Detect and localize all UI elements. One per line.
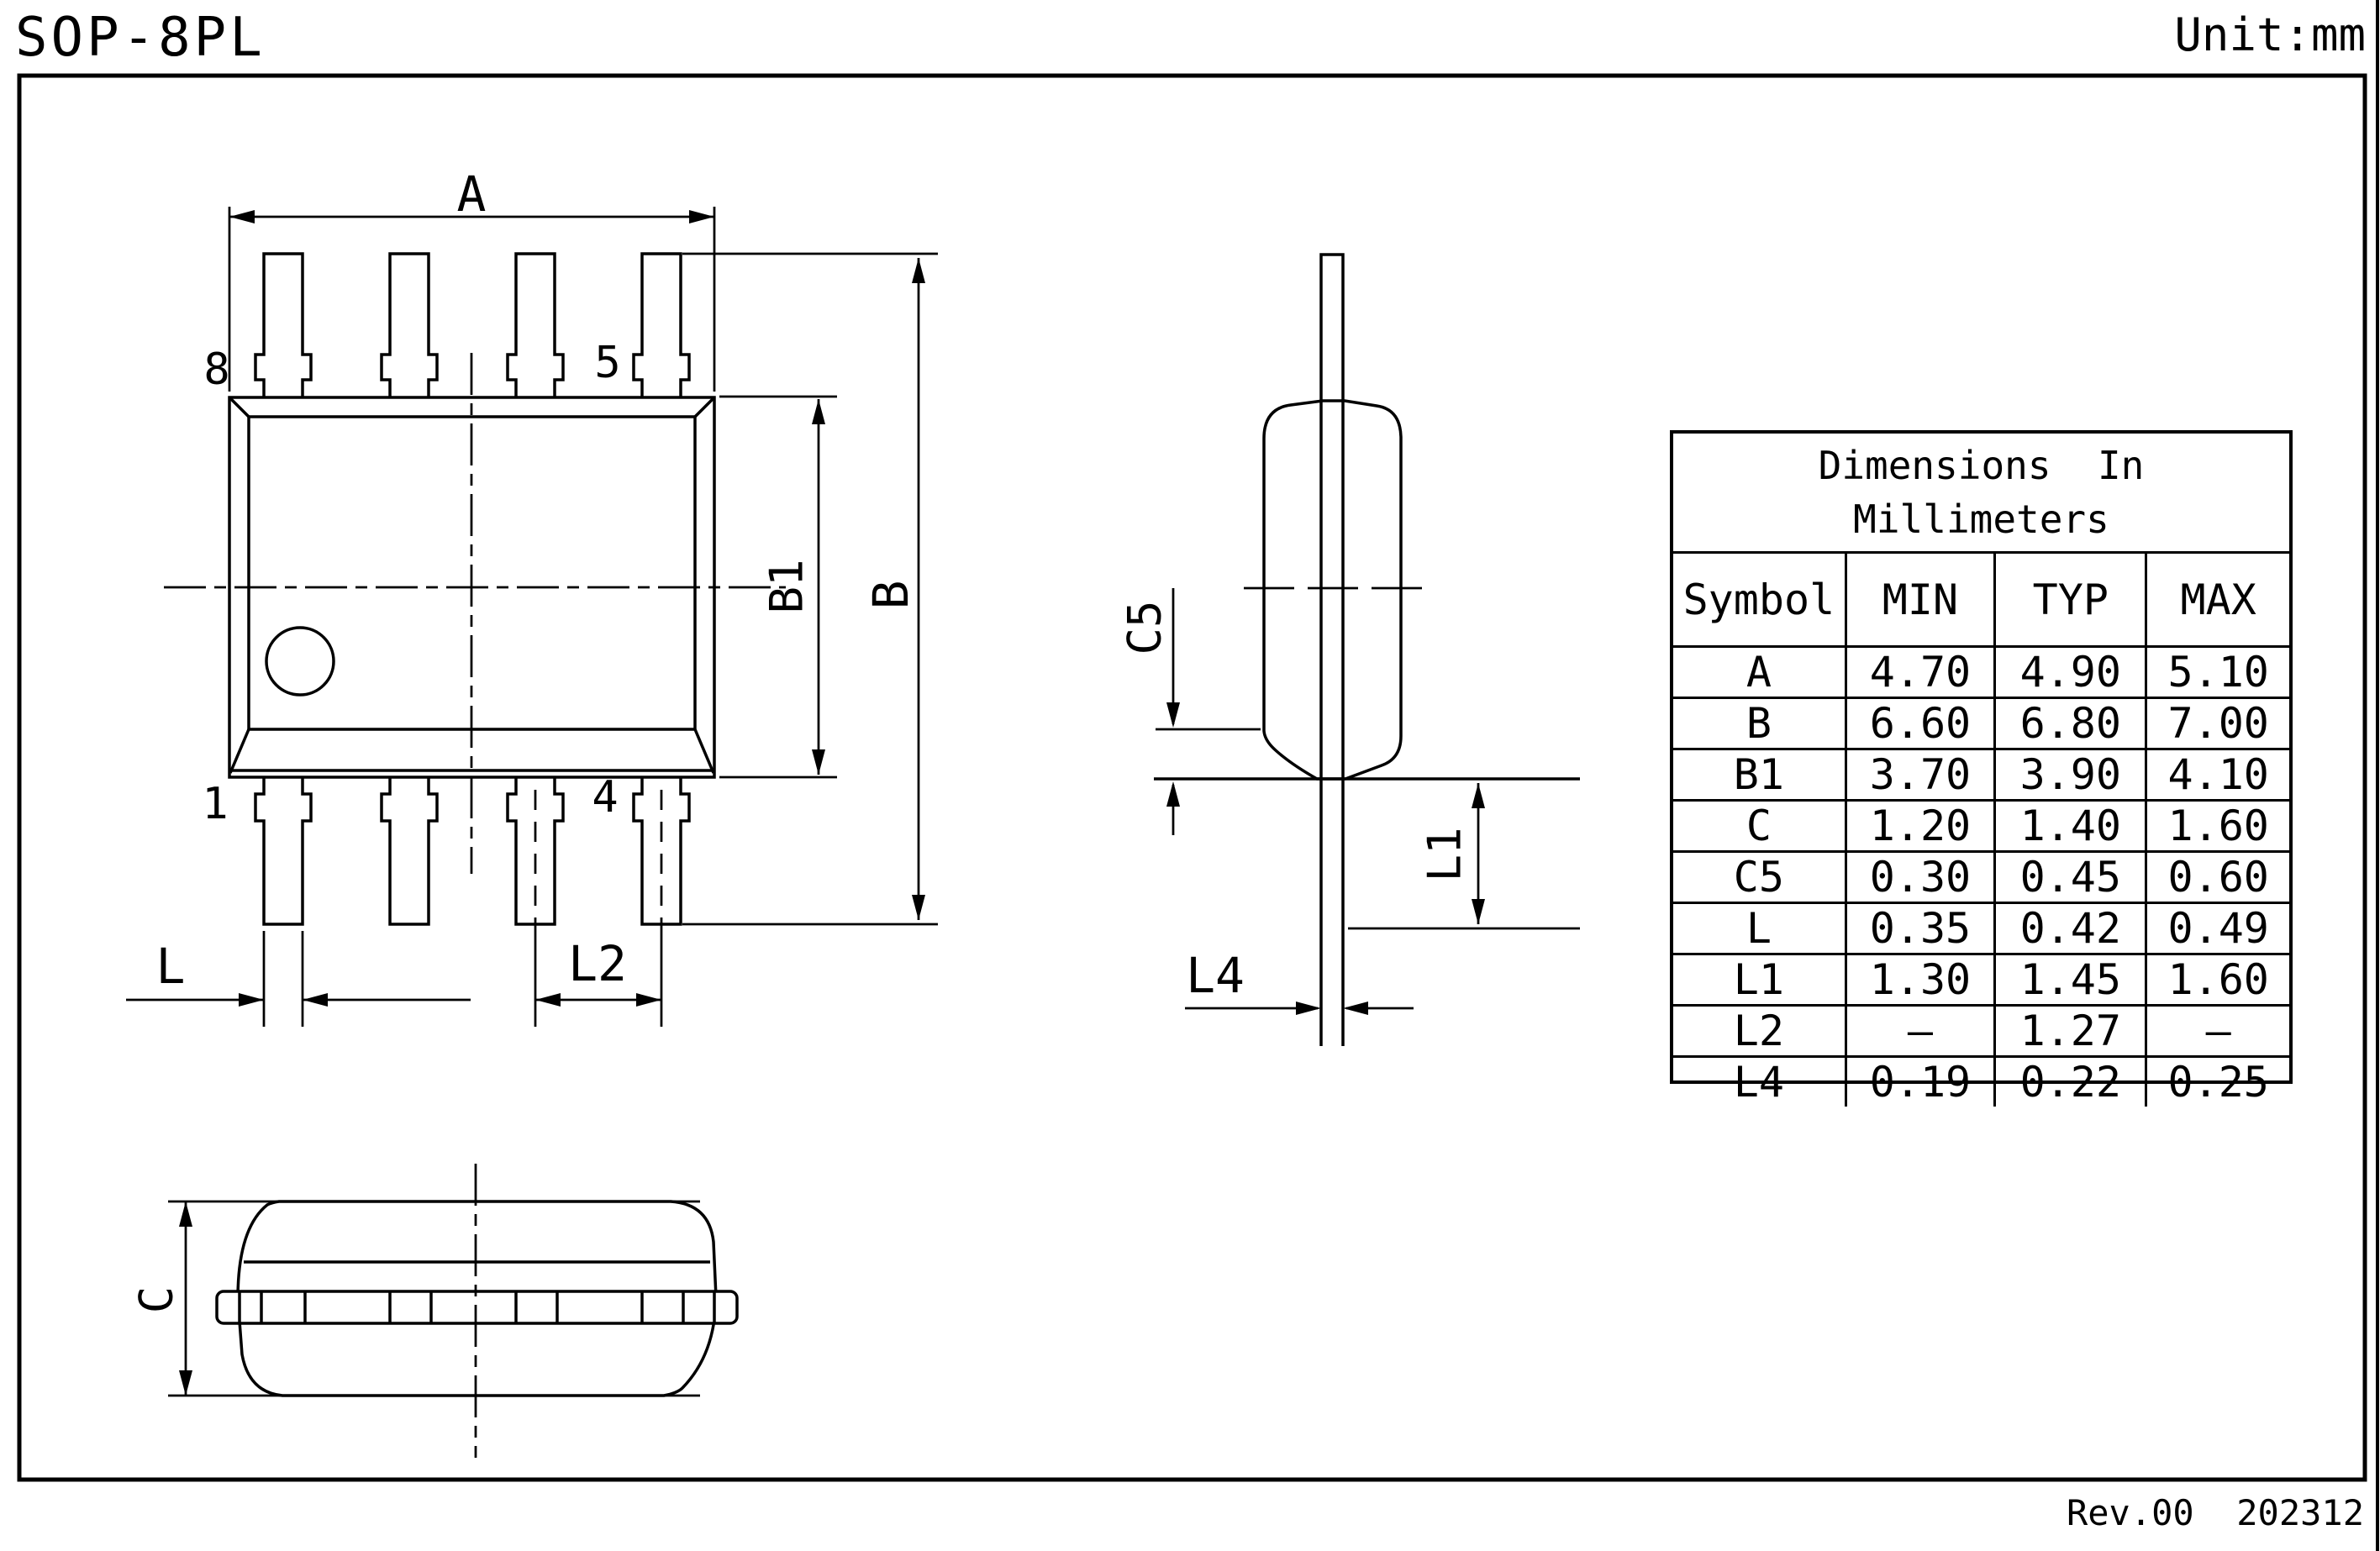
row-typ: 0.22 — [1993, 1058, 2145, 1107]
pin-7 — [382, 254, 437, 397]
table-row: B 6.60 6.80 7.00 — [1673, 697, 2289, 748]
row-symbol: A — [1673, 648, 1845, 697]
pin-1 — [255, 777, 311, 924]
side-lead — [1321, 255, 1343, 1046]
row-max: 0.49 — [2145, 904, 2289, 953]
row-min: 0.35 — [1845, 904, 1993, 953]
arrow-l4-right — [1343, 1002, 1368, 1015]
row-min: 1.20 — [1845, 802, 1993, 850]
row-min: 6.60 — [1845, 699, 1993, 748]
arrow-l-left — [239, 993, 264, 1007]
row-max: 1.60 — [2145, 802, 2289, 850]
row-min: 3.70 — [1845, 750, 1993, 799]
row-typ: 1.45 — [1993, 955, 2145, 1004]
row-typ: 0.42 — [1993, 904, 2145, 953]
row-typ: 0.45 — [1993, 853, 2145, 902]
arrow-l1-bottom — [1472, 899, 1485, 924]
arrow-b1-bottom — [812, 749, 825, 775]
row-typ: 4.90 — [1993, 648, 2145, 697]
arrow-b-bottom — [912, 895, 925, 920]
row-max: 0.25 — [2145, 1058, 2289, 1107]
row-typ: 6.80 — [1993, 699, 2145, 748]
table-row: C5 0.30 0.45 0.60 — [1673, 850, 2289, 902]
arrow-b-top — [912, 258, 925, 283]
table-row: A 4.70 4.90 5.10 — [1673, 645, 2289, 697]
page-title: SOP-8PL — [15, 7, 266, 69]
arrow-l-right — [303, 993, 328, 1007]
pin-8 — [255, 254, 311, 397]
dim-l2-label: L2 — [568, 935, 627, 992]
pin-2 — [382, 777, 437, 924]
revision-label: Rev.00 202312 — [2067, 1492, 2364, 1533]
unit-label: Unit:mm — [2174, 8, 2366, 61]
row-max: 7.00 — [2145, 699, 2289, 748]
table-header-min: MIN — [1845, 554, 1993, 645]
dim-l1-label: L1 — [1419, 827, 1472, 881]
arrow-l1-top — [1472, 783, 1485, 808]
arrow-a-left — [229, 210, 255, 223]
table-title-line2: Millimeters — [1853, 492, 2109, 546]
pin-8-label: 8 — [203, 344, 229, 395]
dimensions-table: Dimensions In Millimeters Symbol MIN TYP… — [1670, 430, 2293, 1084]
row-typ: 1.27 — [1993, 1007, 2145, 1055]
arrow-c-bottom — [179, 1370, 192, 1396]
pin-6 — [508, 254, 563, 397]
pin-1-label: 1 — [202, 779, 228, 829]
arrow-c-top — [179, 1201, 192, 1227]
arrow-c5-down — [1166, 702, 1180, 728]
dim-c-label: C — [130, 1286, 183, 1314]
arrow-a-right — [689, 210, 714, 223]
side-body-outline — [1264, 401, 1401, 779]
row-min: 0.19 — [1845, 1058, 1993, 1107]
arrow-l2-left — [535, 993, 561, 1007]
row-max: 4.10 — [2145, 750, 2289, 799]
table-row: L4 0.19 0.22 0.25 — [1673, 1055, 2289, 1107]
row-typ: 3.90 — [1993, 750, 2145, 799]
table-row: C 1.20 1.40 1.60 — [1673, 799, 2289, 850]
row-typ: 1.40 — [1993, 802, 2145, 850]
pin1-marker-dot — [266, 628, 334, 695]
row-symbol: L2 — [1673, 1007, 1845, 1055]
row-min: 1.30 — [1845, 955, 1993, 1004]
table-row: L1 1.30 1.45 1.60 — [1673, 953, 2289, 1004]
row-symbol: B1 — [1673, 750, 1845, 799]
pin-4-label: 4 — [592, 772, 618, 823]
chamfer-bottom-right — [695, 729, 713, 773]
row-min: – — [1845, 1007, 1993, 1055]
row-min: 0.30 — [1845, 853, 1993, 902]
table-header-max: MAX — [2145, 554, 2289, 645]
table-header-typ: TYP — [1993, 554, 2145, 645]
table-title: Dimensions In Millimeters — [1673, 434, 2289, 551]
pin-5-label: 5 — [594, 338, 620, 388]
side-view-dimensions — [1156, 588, 1580, 1008]
table-title-line1: Dimensions In — [1819, 439, 2145, 492]
row-max: 1.60 — [2145, 955, 2289, 1004]
table-header-row: Symbol MIN TYP MAX — [1673, 551, 2289, 645]
front-view — [168, 1201, 737, 1396]
dim-l4-label: L4 — [1186, 947, 1245, 1004]
dim-c5-label: C5 — [1119, 600, 1172, 655]
table-row: L 0.35 0.42 0.49 — [1673, 902, 2289, 953]
chamfer-bottom-left — [230, 729, 249, 773]
row-max: – — [2145, 1007, 2289, 1055]
row-symbol: B — [1673, 699, 1845, 748]
row-symbol: L4 — [1673, 1058, 1845, 1107]
row-max: 0.60 — [2145, 853, 2289, 902]
dim-a-label: A — [457, 166, 487, 223]
table-row: B1 3.70 3.90 4.10 — [1673, 748, 2289, 799]
dim-b1-label: B1 — [761, 559, 814, 613]
chamfer-top-left — [229, 397, 249, 417]
dim-l-label: L — [156, 938, 186, 995]
row-symbol: C — [1673, 802, 1845, 850]
row-max: 5.10 — [2145, 648, 2289, 697]
table-header-symbol: Symbol — [1673, 554, 1845, 645]
dim-b-label: B — [862, 581, 919, 610]
drawing-page: SOP-8PL Unit:mm Rev.00 202312 A B1 B L L… — [0, 0, 2380, 1551]
table-row: L2 – 1.27 – — [1673, 1004, 2289, 1055]
dimension-arrowheads — [179, 210, 1485, 1396]
row-min: 4.70 — [1845, 648, 1993, 697]
arrow-l2-right — [636, 993, 661, 1007]
lead-row-band — [217, 1291, 737, 1323]
arrow-c5-up — [1166, 781, 1180, 807]
row-symbol: L1 — [1673, 955, 1845, 1004]
chamfer-top-right — [695, 397, 714, 417]
arrow-b1-top — [812, 399, 825, 424]
arrow-l4-left — [1296, 1002, 1321, 1015]
row-symbol: L — [1673, 904, 1845, 953]
row-symbol: C5 — [1673, 853, 1845, 902]
pin-5 — [634, 254, 689, 397]
